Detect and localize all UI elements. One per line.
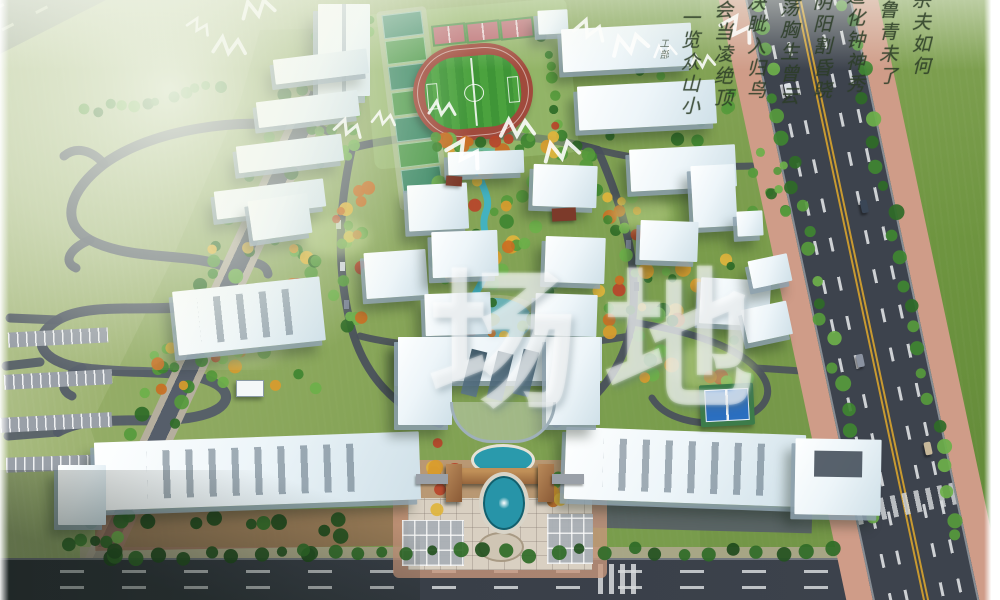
poem-column: 阴阳割昏晓	[808, 0, 835, 118]
masterplan-rendering: 场地 岱宗夫如何 齐鲁青未了 造化钟神秀 阴阳割昏晓 荡胸生曾云 决眦入归鸟 会…	[0, 0, 1000, 600]
watermark-text: 场地	[428, 268, 780, 418]
poem-column: 决眦入归鸟	[742, 0, 769, 118]
poem-column: 一览众山小	[676, 8, 703, 118]
poem-column: 造化钟神秀	[841, 0, 868, 118]
calligraphy-poem: 岱宗夫如何 齐鲁青未了 造化钟神秀 阴阳割昏晓 荡胸生曾云 决眦入归鸟 会当凌绝…	[655, 0, 934, 118]
sketch-bird-mark	[540, 135, 579, 166]
poem-colophon: 工部	[655, 38, 670, 118]
poem-column: 齐鲁青未了	[874, 0, 901, 118]
image-border-right	[984, 0, 1000, 600]
poem-column: 会当凌绝顶	[709, 0, 736, 118]
shadow-southwest	[0, 470, 420, 600]
image-border-left	[0, 0, 9, 600]
poem-column: 荡胸生曾云	[775, 0, 802, 118]
poem-column: 岱宗夫如何	[907, 0, 934, 118]
